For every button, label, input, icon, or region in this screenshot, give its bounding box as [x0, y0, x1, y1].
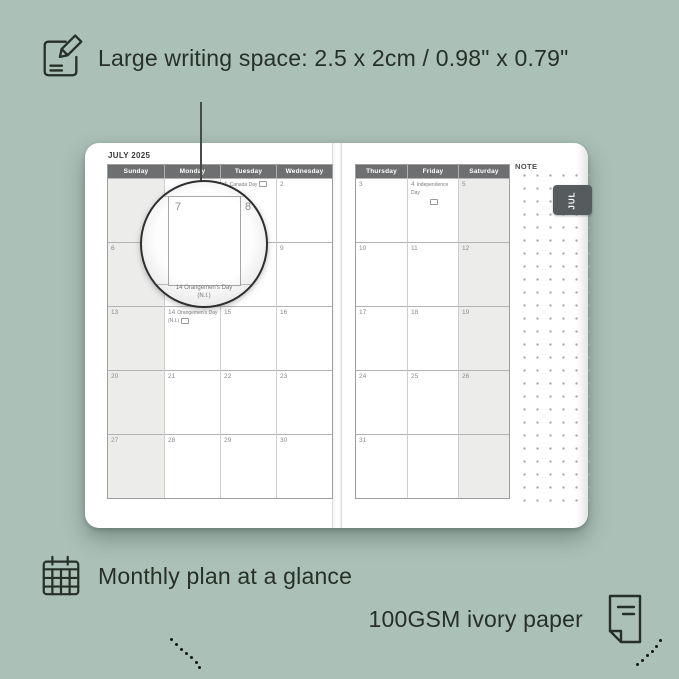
- calendar-cell: 20: [108, 370, 164, 434]
- day-number: 22: [224, 373, 231, 380]
- note-label: NOTE: [515, 162, 540, 172]
- note-dot-grid: [513, 165, 590, 511]
- day-number: 13: [111, 309, 118, 316]
- page-gutter: [332, 143, 342, 528]
- monthly-caption-text: Monthly plan at a glance: [98, 563, 352, 590]
- callout-line: [200, 102, 202, 186]
- calendar-cell: 23: [276, 370, 332, 434]
- magnifier-circle: 7 8 14 Orangemen's Day (N.I.): [140, 180, 268, 308]
- day-number: 30: [280, 437, 287, 444]
- calendar-cell: 19: [458, 306, 509, 370]
- paper-sheet-icon: [597, 592, 645, 646]
- day-header: Thursday: [356, 165, 407, 178]
- calendar-cell: 30: [276, 434, 332, 498]
- calendar-cell: 3: [356, 178, 407, 242]
- month-title: JULY 2025: [108, 151, 150, 160]
- day-number: 2: [280, 181, 284, 188]
- day-header: Sunday: [108, 165, 164, 178]
- day-number: 12: [462, 245, 469, 252]
- day-header: Saturday: [458, 165, 509, 178]
- calendar-cell: 11: [407, 242, 458, 306]
- day-number: 27: [111, 437, 118, 444]
- calendar-cell: 10: [356, 242, 407, 306]
- day-number: 9: [280, 245, 284, 252]
- day-number: 21: [168, 373, 175, 380]
- paper-caption-text: 100GSM ivory paper: [368, 606, 583, 633]
- day-header: Monday: [164, 165, 220, 178]
- calendar-cell: 12: [458, 242, 509, 306]
- day-number: 20: [111, 373, 118, 380]
- paper-caption: 100GSM ivory paper: [368, 592, 645, 646]
- day-header: Friday: [407, 165, 458, 178]
- day-number: 19: [462, 309, 469, 316]
- day-number: 31: [359, 437, 366, 444]
- day-header: Tuesday: [220, 165, 276, 178]
- calendar-right-page: ThursdayFridaySaturday34Independence Day…: [355, 164, 510, 499]
- calendar-cell: 4Independence Day: [407, 178, 458, 242]
- day-number: 10: [359, 245, 366, 252]
- magnified-day-number: 7: [175, 201, 181, 213]
- pencil-note-icon: [38, 34, 84, 82]
- calendar-cell: 25: [407, 370, 458, 434]
- calendar-grid-icon: [38, 552, 84, 600]
- calendar-cell: 2: [276, 178, 332, 242]
- day-number: 18: [411, 309, 418, 316]
- month-tab-label: JUL: [568, 191, 577, 209]
- day-number: 25: [411, 373, 418, 380]
- calendar-cell: 31: [356, 434, 407, 498]
- stitch-marks-left: [170, 638, 173, 641]
- calendar-cell: 29: [220, 434, 276, 498]
- day-number: 28: [168, 437, 175, 444]
- day-number: 5: [462, 181, 466, 188]
- calendar-cell: [407, 434, 458, 498]
- holiday-label: Independence Day: [411, 182, 448, 196]
- holiday-label: Orangemen's Day (N.I.): [168, 310, 217, 324]
- calendar-cell: 18: [407, 306, 458, 370]
- calendar-cell: 26: [458, 370, 509, 434]
- magnified-day-number: 8: [245, 201, 251, 213]
- calendar-cell: 16: [276, 306, 332, 370]
- calendar-cell: 21: [164, 370, 220, 434]
- calendar-cell: [458, 434, 509, 498]
- calendar-cell: 27: [108, 434, 164, 498]
- day-number: 15: [224, 309, 231, 316]
- calendar-cell: 17: [356, 306, 407, 370]
- day-number: 3: [359, 181, 363, 188]
- day-number: 17: [359, 309, 366, 316]
- day-number: 29: [224, 437, 231, 444]
- flag-icon: [259, 181, 267, 187]
- day-number: 6: [111, 245, 115, 252]
- calendar-cell: 5: [458, 178, 509, 242]
- top-caption-text: Large writing space: 2.5 x 2cm / 0.98" x…: [98, 45, 568, 72]
- month-tab: JUL: [553, 185, 592, 215]
- flag-icon: [430, 199, 438, 205]
- day-number: 23: [280, 373, 287, 380]
- product-infographic: Large writing space: 2.5 x 2cm / 0.98" x…: [0, 0, 679, 679]
- day-number: 24: [359, 373, 366, 380]
- calendar-cell: 22: [220, 370, 276, 434]
- calendar-cell: 15: [220, 306, 276, 370]
- flag-icon: [181, 318, 189, 324]
- magnified-holiday-label: 14 Orangemen's Day (N.I.): [142, 285, 266, 300]
- calendar-cell: 9: [276, 242, 332, 306]
- calendar-cell: 28: [164, 434, 220, 498]
- calendar-cell: 14Orangemen's Day (N.I.): [164, 306, 220, 370]
- day-number: 26: [462, 373, 469, 380]
- calendar-cell: 13: [108, 306, 164, 370]
- stitch-marks-right: [636, 663, 639, 666]
- day-number: 14: [168, 309, 175, 316]
- day-number: 16: [280, 309, 287, 316]
- calendar-cell: 24: [356, 370, 407, 434]
- day-number: 11: [411, 245, 418, 252]
- day-number: 4: [411, 181, 415, 188]
- top-caption: Large writing space: 2.5 x 2cm / 0.98" x…: [38, 34, 568, 82]
- monthly-caption: Monthly plan at a glance: [38, 552, 352, 600]
- day-header: Wednesday: [276, 165, 332, 178]
